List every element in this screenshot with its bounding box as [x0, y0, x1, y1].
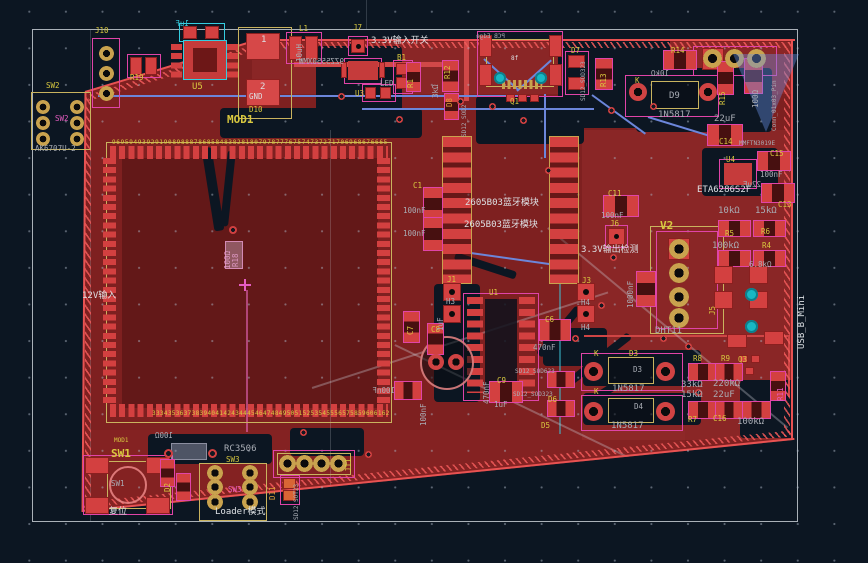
- mod1-pin-numbers-bottom: 3334353637383940414243444546474849505152…: [152, 411, 390, 417]
- ic-u5-body: [193, 48, 217, 72]
- ref-d3: D3: [629, 350, 638, 358]
- usb-shield-pad[interactable]: [549, 64, 562, 86]
- ref-r6: R6: [761, 228, 770, 236]
- value-1uf: 1uF: [494, 401, 508, 409]
- th-pad[interactable]: [279, 455, 296, 472]
- smd-pad[interactable]: [146, 497, 170, 514]
- ref-j7: J7: [353, 24, 362, 32]
- via[interactable]: [164, 449, 173, 458]
- smd-pad[interactable]: [764, 331, 784, 345]
- ref-u1: U1: [489, 289, 498, 297]
- ref-r1: R1: [407, 79, 415, 88]
- silk-sw3: SW3: [228, 486, 242, 494]
- resistor[interactable]: [176, 473, 191, 501]
- value-10kohm: 10kΩ: [718, 207, 740, 216]
- ref-j6: J6: [610, 220, 619, 228]
- ref-l1: L1: [299, 25, 308, 33]
- via[interactable]: [520, 117, 527, 124]
- via[interactable]: [608, 107, 615, 114]
- value-h4: H4: [581, 299, 590, 307]
- ref-j3: J3: [582, 277, 591, 285]
- ref-c6: C6: [545, 316, 554, 324]
- value-led: LED: [380, 80, 394, 88]
- board-edge: [791, 40, 793, 440]
- smd-pad[interactable]: [379, 62, 385, 78]
- ref-r9: R9: [721, 355, 730, 363]
- ref-r8: R8: [693, 355, 702, 363]
- via[interactable]: [685, 343, 692, 350]
- via[interactable]: [660, 335, 667, 342]
- axis-line: [366, 0, 367, 30]
- smd-pad[interactable]: [530, 94, 539, 102]
- pcb-editor-canvas: J10 SW2 SW2 AK6707U-2 R19 U5 1uF MOD1 1 …: [0, 0, 868, 563]
- smd-pad[interactable]: [85, 497, 109, 514]
- ref-r7: R7: [688, 416, 697, 424]
- ref-j11: J11: [345, 458, 353, 472]
- pad-hole: [356, 44, 361, 49]
- value-sd12-sot23: SD12_SOT23: [294, 484, 300, 520]
- via[interactable]: [300, 429, 307, 436]
- ghost-ref-r18: R18: [232, 253, 240, 267]
- value-100nf: 100nF: [403, 230, 426, 238]
- ref-c7: C7: [407, 326, 415, 335]
- value-bt-module-1: 2605B03蓝牙模块: [465, 199, 539, 208]
- smd-pad[interactable]: [714, 266, 733, 284]
- silk-reset: 复位: [109, 508, 127, 517]
- value-1000nf: 1000nF: [627, 281, 635, 308]
- smd-pad[interactable]: [365, 87, 376, 99]
- th-pad[interactable]: [99, 46, 114, 61]
- highlighted-via[interactable]: [745, 288, 758, 301]
- pad-hole: [449, 311, 455, 317]
- silk-sw1: SW1: [111, 480, 125, 488]
- highlighted-via[interactable]: [535, 72, 547, 84]
- capacitor[interactable]: [394, 381, 422, 400]
- via[interactable]: [208, 449, 217, 458]
- value-dht11: DHT11: [655, 327, 682, 336]
- th-pad[interactable]: [448, 354, 464, 370]
- th-pad[interactable]: [669, 308, 689, 328]
- th-pad[interactable]: [428, 354, 444, 370]
- silk-pcb-edge-mirrored: PCB Edge: [476, 34, 505, 40]
- value-100ohm-mirrored: 100Ω: [155, 432, 173, 440]
- via[interactable]: [229, 226, 237, 234]
- value-h4: H4: [581, 324, 590, 332]
- ref-c11: C11: [608, 190, 622, 198]
- via[interactable]: [545, 167, 552, 174]
- value-1uf-selected: 1uF: [175, 20, 189, 28]
- value-6k8: 6.8kΩ: [749, 261, 772, 269]
- ref-u5: U5: [192, 83, 203, 92]
- capacitor-c1[interactable]: [423, 187, 443, 221]
- smd-pad-row[interactable]: [377, 158, 390, 406]
- value-470nf: 470nF: [483, 381, 491, 404]
- value-1n5817: 1N5817: [612, 385, 645, 394]
- via[interactable]: [598, 302, 605, 309]
- th-pad[interactable]: [70, 100, 84, 114]
- value-3kohm: 3kΩ: [432, 84, 440, 98]
- ref-d8: D8: [446, 98, 454, 107]
- value-ak6707u: AK6707U-2: [35, 145, 76, 153]
- silk-sw2: SW2: [55, 115, 69, 123]
- value-220kohm: 220kΩ: [713, 380, 740, 389]
- ref-d7: D7: [571, 47, 580, 55]
- value-b1-mirrored: 9ZZ5550XMW: [299, 58, 344, 66]
- pin-k: K: [594, 350, 599, 358]
- smd-pad[interactable]: [751, 355, 760, 363]
- ghost-resistor[interactable]: [171, 443, 207, 460]
- ref-c9: C9: [497, 377, 506, 385]
- via[interactable]: [572, 335, 579, 342]
- th-pad[interactable]: [99, 66, 114, 81]
- ref-j5: J5: [709, 306, 717, 315]
- th-pad[interactable]: [669, 239, 689, 259]
- th-pad[interactable]: [656, 402, 675, 421]
- ref-r19: R19: [130, 74, 144, 82]
- ref-u4: U4: [726, 156, 735, 164]
- value-22uf-mirrored: 22uF: [743, 181, 761, 189]
- value-22uf: 22uF: [714, 115, 736, 124]
- value-d4: D4: [634, 403, 643, 411]
- pad-hole: [583, 311, 589, 317]
- ref-sw3: SW3: [226, 456, 240, 464]
- ic-u3-body: [348, 61, 378, 80]
- module-mod1[interactable]: [106, 142, 392, 423]
- pin-k: K: [635, 77, 640, 85]
- silk-3v3-output-check: 3.3V输出检测: [581, 246, 639, 255]
- value-100nf: 100nF: [760, 171, 783, 179]
- th-pad[interactable]: [656, 362, 675, 381]
- ref-c14: C14: [719, 138, 733, 146]
- resistor[interactable]: [718, 250, 751, 267]
- th-pad[interactable]: [629, 83, 647, 101]
- highlighted-via[interactable]: [494, 72, 506, 84]
- net-8f: 8f: [511, 56, 518, 62]
- th-pad[interactable]: [99, 86, 114, 101]
- value-d9: D9: [669, 92, 680, 101]
- ref-d6: D6: [548, 396, 557, 404]
- bt-module-pad-column[interactable]: [442, 136, 472, 284]
- pad-gnd: GND: [249, 93, 263, 101]
- diode-d4-body: [608, 398, 654, 423]
- ref-d10: D10: [249, 106, 263, 114]
- ref-c1: C1: [413, 182, 422, 190]
- value-usb-b-mini: USB_B_Mini: [798, 295, 807, 349]
- ref-sw1: SW1: [111, 448, 131, 459]
- value-sd12-sod323: SD12_SOD323: [581, 61, 587, 101]
- value-100nf-mirrored: 100nF: [372, 387, 395, 395]
- th-pad[interactable]: [699, 83, 717, 101]
- th-pad[interactable]: [669, 263, 689, 283]
- usb-shield-pad[interactable]: [479, 64, 492, 86]
- value-1n5817: 1N5817: [611, 422, 644, 431]
- via[interactable]: [365, 451, 372, 458]
- via[interactable]: [396, 116, 403, 123]
- bt-module-pad-column[interactable]: [549, 136, 579, 284]
- smd-pad[interactable]: [145, 57, 157, 75]
- value-mmftn3019e: MMFTN3019E: [739, 141, 775, 147]
- value-1n5817: 1N5817: [658, 111, 691, 120]
- ref-d5: D5: [541, 422, 550, 430]
- anchor-cross: [244, 279, 246, 291]
- value-100nf: 100nF: [403, 207, 426, 215]
- via[interactable]: [610, 254, 617, 261]
- th-pad[interactable]: [584, 362, 603, 381]
- ref-r12: R12: [444, 65, 452, 79]
- net-12v-input: 12V输入: [82, 292, 116, 301]
- highlighted-via[interactable]: [745, 320, 758, 333]
- value-d3: D3: [633, 366, 642, 374]
- ghost-value-100ohm: 100Ω: [224, 251, 232, 269]
- th-pad[interactable]: [296, 455, 313, 472]
- ref-r11: R11: [777, 387, 785, 401]
- th-pad[interactable]: [207, 479, 223, 495]
- value-15kohm: 15kΩ: [755, 207, 777, 216]
- silk-3v3-input-switch: 3.3V输入开关: [371, 37, 429, 46]
- value-sd12-sod2: SD12_SOD2: [462, 104, 468, 137]
- usb-shield-pad[interactable]: [549, 35, 562, 57]
- ref-c15: C15: [770, 150, 784, 158]
- ref-sw2: SW2: [46, 82, 60, 90]
- ref-d11: D11: [269, 486, 277, 500]
- capacitor-c2[interactable]: [423, 217, 443, 251]
- pin-k: K: [594, 388, 599, 396]
- pad-number-1: 1: [261, 36, 266, 45]
- smd-pad-row[interactable]: [171, 44, 182, 78]
- value-rc3506: RC3506: [224, 445, 257, 454]
- value-sd12-sod623: SD12_SOD623: [515, 369, 555, 375]
- smd-pad[interactable]: [727, 334, 747, 348]
- value-100nf: 100nF: [420, 403, 428, 426]
- th-pad[interactable]: [584, 402, 603, 421]
- th-pad[interactable]: [703, 49, 722, 68]
- smd-pad[interactable]: [518, 94, 527, 102]
- smd-pad[interactable]: [205, 26, 219, 39]
- ref-b1: B1: [397, 54, 406, 62]
- ref-r13: R13: [600, 73, 608, 87]
- ref-v2: V2: [660, 220, 673, 231]
- pad-hole: [449, 289, 455, 295]
- value-10kohm-mirrored: 10kΩ: [651, 70, 669, 78]
- value-conn-01x03: Conn_01x03_Pin: [772, 80, 778, 131]
- value-1uf: 1uF: [437, 317, 445, 331]
- via[interactable]: [489, 103, 496, 110]
- value-33kohm: 33kΩ: [681, 381, 703, 390]
- value-15kohm: 15kΩ: [681, 391, 703, 400]
- ref-q1: Q1: [510, 98, 519, 106]
- value-100kohm: 100kΩ: [712, 242, 739, 251]
- th-pad[interactable]: [36, 116, 50, 130]
- smd-pad[interactable]: [380, 87, 391, 99]
- value-22uf: 22uF: [713, 391, 735, 400]
- value-470nf: 470nF: [533, 344, 556, 352]
- value-100kohm: 100kΩ: [737, 418, 764, 427]
- th-pad[interactable]: [70, 116, 84, 130]
- th-pad[interactable]: [669, 287, 689, 307]
- ref-c13: C13: [778, 201, 792, 209]
- th-pad[interactable]: [242, 479, 258, 495]
- ref-r4: R4: [762, 242, 771, 250]
- capacitor-c6[interactable]: [539, 319, 571, 341]
- smd-pad[interactable]: [745, 367, 754, 375]
- value-sd12-sod323: SD12_SOD323: [513, 392, 553, 398]
- smd-pad-row[interactable]: [103, 158, 116, 406]
- ref-j1: J1: [447, 276, 456, 284]
- silk-loader-mode: Loader模式: [215, 508, 266, 517]
- ref-c16: C16: [713, 415, 727, 423]
- ref-d2: D2: [164, 483, 172, 492]
- diode-d3-body: [608, 357, 654, 384]
- ref-u3: U3: [355, 90, 364, 98]
- smd-pad-row[interactable]: [227, 44, 238, 78]
- pad-hole: [614, 234, 619, 239]
- value-100ohm: 100Ω: [752, 90, 760, 108]
- th-pad[interactable]: [36, 100, 50, 114]
- value-bt-module-2: 2605B03蓝牙模块: [464, 221, 538, 230]
- pad-number-2: 2: [260, 83, 265, 92]
- capacitor-1000nf[interactable]: [636, 271, 656, 307]
- ref-r14: R14: [671, 47, 685, 55]
- value-h3: H3: [446, 298, 455, 306]
- via[interactable]: [338, 93, 345, 100]
- smd-pad[interactable]: [85, 457, 109, 474]
- smd-pad-row[interactable]: [467, 297, 483, 393]
- ref-r5: R5: [725, 230, 734, 238]
- mod1-pin-numbers-top: 9695949392919089888786858483828180797877…: [112, 140, 388, 146]
- smd-pad-row[interactable]: [110, 146, 388, 159]
- ref-q3: Q3: [738, 356, 747, 364]
- resistor-r5[interactable]: [718, 220, 751, 237]
- ref-mod1-small: MOD1: [114, 438, 128, 444]
- ref-r15: R15: [719, 91, 727, 105]
- ref-j10: J10: [95, 27, 109, 35]
- ref-mod1: MOD1: [227, 114, 254, 125]
- pad-hole: [583, 289, 589, 295]
- th-pad[interactable]: [313, 455, 330, 472]
- via[interactable]: [650, 103, 657, 110]
